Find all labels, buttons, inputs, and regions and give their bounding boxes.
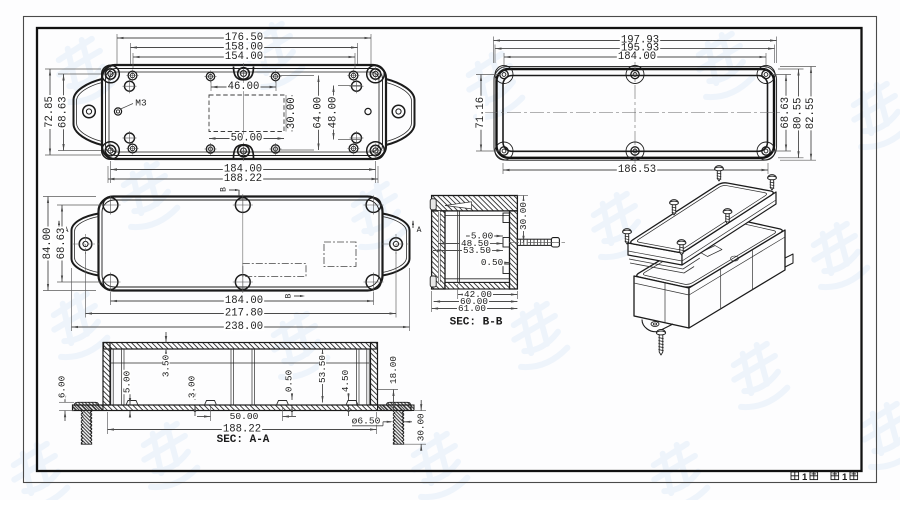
svg-text:0.50: 0.50 bbox=[481, 257, 503, 268]
svg-text:53.50: 53.50 bbox=[317, 355, 328, 383]
svg-text:68.63: 68.63 bbox=[56, 228, 68, 260]
svg-text:64.00: 64.00 bbox=[313, 97, 325, 129]
svg-text:M3: M3 bbox=[135, 98, 147, 109]
svg-text:4.50: 4.50 bbox=[340, 370, 351, 392]
svg-text:61.00: 61.00 bbox=[458, 303, 486, 314]
svg-text:B: B bbox=[285, 293, 294, 298]
svg-text:A: A bbox=[417, 226, 422, 235]
svg-text:238.00: 238.00 bbox=[225, 321, 263, 333]
svg-text:188.22: 188.22 bbox=[224, 173, 262, 185]
svg-text:30.00: 30.00 bbox=[416, 413, 427, 441]
svg-text:186.53: 186.53 bbox=[618, 164, 656, 176]
svg-text:50.00: 50.00 bbox=[230, 411, 259, 422]
svg-text:72.85: 72.85 bbox=[44, 96, 56, 128]
svg-text:SEC: A-A: SEC: A-A bbox=[217, 434, 270, 446]
svg-text:217.80: 217.80 bbox=[225, 308, 263, 320]
svg-text:84.00: 84.00 bbox=[42, 228, 54, 260]
svg-text:154.00: 154.00 bbox=[225, 51, 263, 63]
svg-text:SEC: B-B: SEC: B-B bbox=[450, 317, 503, 329]
svg-text:30.00: 30.00 bbox=[518, 202, 529, 230]
svg-text:B: B bbox=[220, 187, 229, 192]
svg-text:48.00: 48.00 bbox=[328, 97, 340, 129]
svg-text:1: 1 bbox=[802, 472, 808, 483]
svg-text:5.00: 5.00 bbox=[122, 371, 133, 393]
svg-text:68.63: 68.63 bbox=[780, 97, 792, 129]
svg-text:3.50: 3.50 bbox=[161, 355, 172, 377]
svg-text:0.50: 0.50 bbox=[284, 370, 295, 392]
svg-text:184.00: 184.00 bbox=[225, 295, 263, 307]
svg-text:18.00: 18.00 bbox=[388, 356, 399, 384]
svg-text:53.50: 53.50 bbox=[463, 245, 491, 256]
svg-text:82.55: 82.55 bbox=[805, 97, 817, 129]
svg-text:30.00: 30.00 bbox=[286, 97, 298, 129]
svg-text:50.00: 50.00 bbox=[231, 133, 263, 145]
svg-text:6.00: 6.00 bbox=[57, 376, 68, 398]
svg-text:1: 1 bbox=[842, 472, 848, 483]
svg-text:184.00: 184.00 bbox=[618, 51, 656, 63]
svg-text:46.00: 46.00 bbox=[228, 81, 260, 93]
svg-text:71.16: 71.16 bbox=[475, 97, 487, 129]
svg-text:3.00: 3.00 bbox=[187, 376, 198, 398]
svg-text:68.63: 68.63 bbox=[58, 96, 70, 128]
svg-text:ø6.50: ø6.50 bbox=[352, 416, 381, 427]
svg-text:80.55: 80.55 bbox=[793, 98, 805, 130]
